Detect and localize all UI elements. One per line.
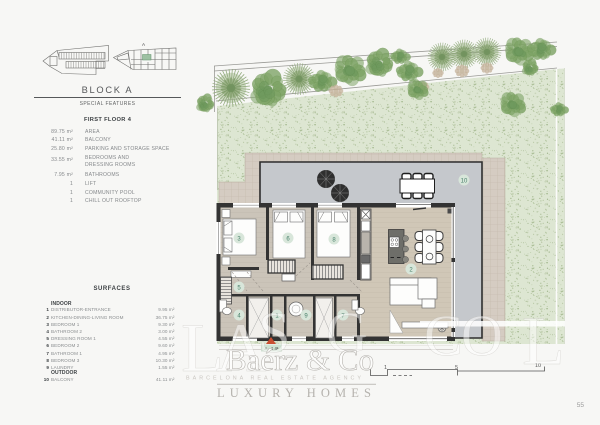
svg-text:LUXURY HOMES: LUXURY HOMES	[217, 386, 376, 400]
svg-text:BARCELONA REAL ESTATE AGENCY: BARCELONA REAL ESTATE AGENCY	[186, 376, 364, 382]
svg-text:1: 1	[384, 365, 387, 371]
svg-text:A: A	[142, 42, 146, 47]
svg-text:O: O	[461, 303, 503, 368]
svg-text:10: 10	[461, 178, 468, 184]
svg-text:55: 55	[577, 402, 585, 409]
svg-text:Baérz & Co: Baérz & Co	[226, 342, 374, 377]
svg-text:L: L	[522, 303, 565, 380]
svg-text:C: C	[424, 303, 463, 368]
